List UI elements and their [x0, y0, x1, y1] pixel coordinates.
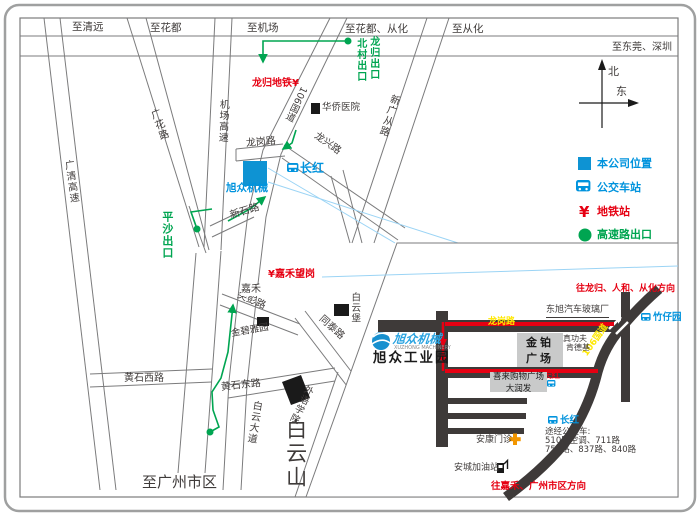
- dest-huadu-conghua: 至花都、从化: [345, 24, 408, 35]
- place-baiyun-mountain: 白云山: [284, 418, 307, 490]
- legend-company-label: 本公司位置: [597, 158, 652, 170]
- legend-metro-label: 地铁站: [597, 206, 630, 218]
- dest-huadu: 至花都: [150, 23, 182, 34]
- company-label-main: 旭众机械: [226, 183, 268, 194]
- compass-north-label: 北: [608, 66, 619, 78]
- station-longgui-metro: 龙归地铁¥: [252, 79, 299, 90]
- place-baiyunbao: 白云堡: [349, 292, 359, 324]
- road-g106: 106国道: [282, 85, 307, 123]
- metro-icon: ¥: [268, 269, 275, 280]
- compass-east-label: 东: [616, 86, 627, 98]
- jinbo-plaza-line2: 广场: [526, 350, 554, 366]
- inset-ancheng-gas: 安城加油站: [454, 464, 499, 474]
- exit-pingsha: 平沙出口: [161, 211, 173, 259]
- road-baiyun-ave: 白云大道: [244, 399, 262, 444]
- road-longgang: 龙岗路: [246, 137, 277, 150]
- road-huangshi-east: 黄石东路: [221, 379, 262, 394]
- station-longgui-label: 龙归地铁: [252, 78, 292, 89]
- road-jichang-expwy: 机场高速: [215, 99, 227, 143]
- map-canvas: ¥ 至清远 至花都 至机场 至花都、从化 至从化 至东莞、深圳 广清高速 广花路…: [0, 0, 700, 516]
- place-jiahe: 嘉禾: [241, 285, 261, 296]
- dest-guangzhou-city: 至广州市区: [142, 474, 217, 490]
- map-labels: 至清远 至花都 至机场 至花都、从化 至从化 至东莞、深圳 广清高速 广花路 机…: [0, 0, 700, 516]
- jinbo-plaza-line1: 金铂: [526, 334, 554, 350]
- company-park-label: 旭众工业园: [373, 351, 451, 366]
- inset-direction-south: 往嘉禾、广州市区方向: [491, 482, 586, 492]
- road-huangshi-west: 黄石西路: [124, 374, 164, 385]
- inset-bus-info-line2: 753路、837路、840路: [545, 446, 636, 455]
- inset-busstop-zhuzaiyuan: 竹仔园: [653, 313, 682, 323]
- xilai-mall-label: 喜来购物广场: [493, 370, 544, 382]
- dest-qingyuan: 至清远: [72, 22, 104, 33]
- inset-ankang-clinic: 安康门诊: [476, 436, 512, 446]
- darunfa-label: 大润发: [506, 382, 532, 394]
- station-jiahewanggang-label: 嘉禾望岗: [275, 269, 315, 280]
- road-guangqing-expwy: 广清高速: [61, 159, 78, 204]
- road-tongtai: 同泰路: [316, 314, 346, 342]
- inset-dongxu-glass: 东旭汽车玻璃厂: [546, 306, 609, 318]
- inset-road-longgang: 龙岗路: [488, 318, 515, 328]
- station-jiahewanggang: ¥嘉禾望岗: [268, 270, 315, 281]
- road-longxing: 龙兴路: [312, 131, 343, 157]
- road-xinguangcong: 新广从路: [375, 92, 399, 137]
- road-guanghua: 广花路: [147, 108, 168, 143]
- dest-jichang: 至机场: [247, 23, 279, 34]
- company-logo-brand: 旭众机械: [392, 333, 441, 346]
- busstop-changhong-main: 长红: [300, 162, 324, 175]
- dest-conghua: 至从化: [452, 24, 484, 35]
- legend-bus-label: 公交车站: [597, 182, 641, 194]
- place-huaqiao-hospital: 华侨医院: [322, 103, 360, 113]
- xilai-mall-box: 喜来购物广场 大润发: [490, 372, 547, 392]
- exit-beicun: 北村出口: [354, 38, 365, 82]
- inset-busstop-changhong-blue: 长红: [560, 416, 579, 426]
- legend-exit-label: 高速路出口: [597, 229, 652, 241]
- road-xinshi: 新石路: [229, 203, 261, 222]
- inset-direction-north: 往龙归、人和、从化方向: [576, 285, 675, 295]
- place-jinbiyayuan: 金碧雅园: [230, 323, 269, 340]
- metro-icon: ¥: [292, 78, 299, 89]
- dest-dongguan-shenzhen: 至东莞、深圳: [612, 43, 672, 54]
- jinbo-plaza-box: 金铂 广场: [517, 333, 563, 367]
- inset-kfc: 肯德基: [566, 344, 590, 353]
- exit-longgui: 龙归出口: [367, 36, 378, 80]
